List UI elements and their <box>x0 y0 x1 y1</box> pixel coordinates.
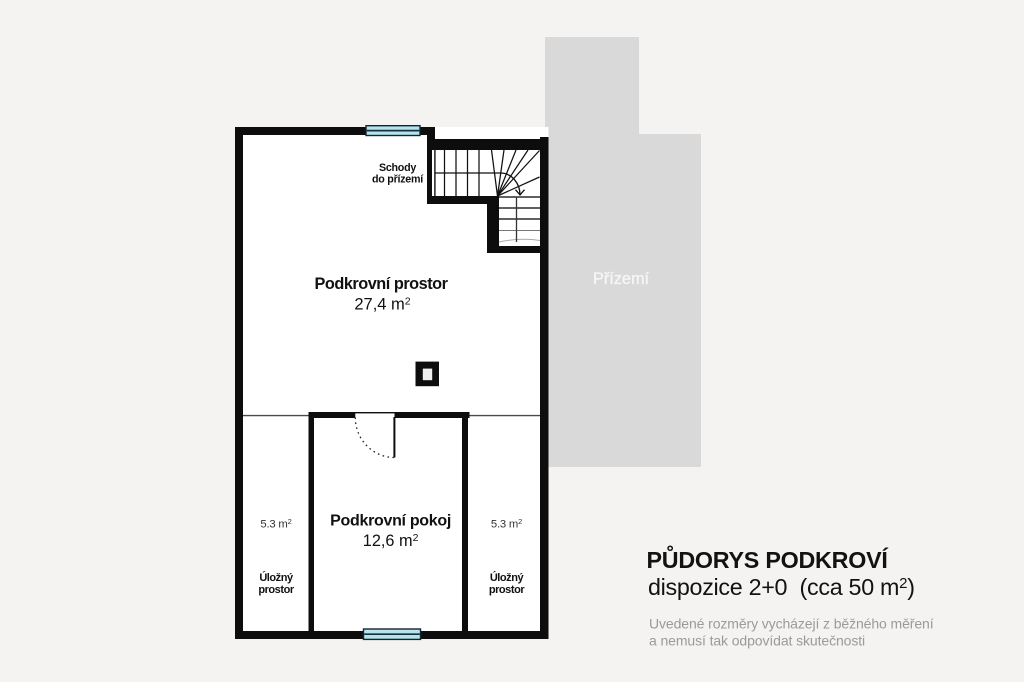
svg-text:Uvedené rozměry vycházejí z bě: Uvedené rozměry vycházejí z běžného měře… <box>649 616 934 632</box>
svg-text:Podkrovní pokoj: Podkrovní pokoj <box>330 512 451 529</box>
svg-text:Schody: Schody <box>379 162 416 174</box>
svg-text:5.3 m2: 5.3 m2 <box>491 517 522 530</box>
svg-text:Přízemí: Přízemí <box>593 270 650 288</box>
svg-text:PŮDORYS PODKROVÍ: PŮDORYS PODKROVÍ <box>647 544 889 573</box>
svg-text:5.3 m2: 5.3 m2 <box>260 517 291 530</box>
svg-text:prostor: prostor <box>489 584 526 596</box>
svg-text:Úložný: Úložný <box>490 571 525 584</box>
svg-text:27,4 m2: 27,4 m2 <box>354 295 410 313</box>
svg-text:prostor: prostor <box>258 584 295 596</box>
svg-text:Úložný: Úložný <box>259 571 294 584</box>
svg-text:12,6 m2: 12,6 m2 <box>363 532 419 550</box>
svg-text:dispozice 2+0 (cca 50 m2): dispozice 2+0 (cca 50 m2) <box>648 574 915 600</box>
svg-text:Podkrovní prostor: Podkrovní prostor <box>315 275 449 293</box>
svg-text:do přízemí: do přízemí <box>372 173 424 185</box>
svg-text:a nemusí tak odpovídat skutečn: a nemusí tak odpovídat skutečnosti <box>649 633 865 649</box>
